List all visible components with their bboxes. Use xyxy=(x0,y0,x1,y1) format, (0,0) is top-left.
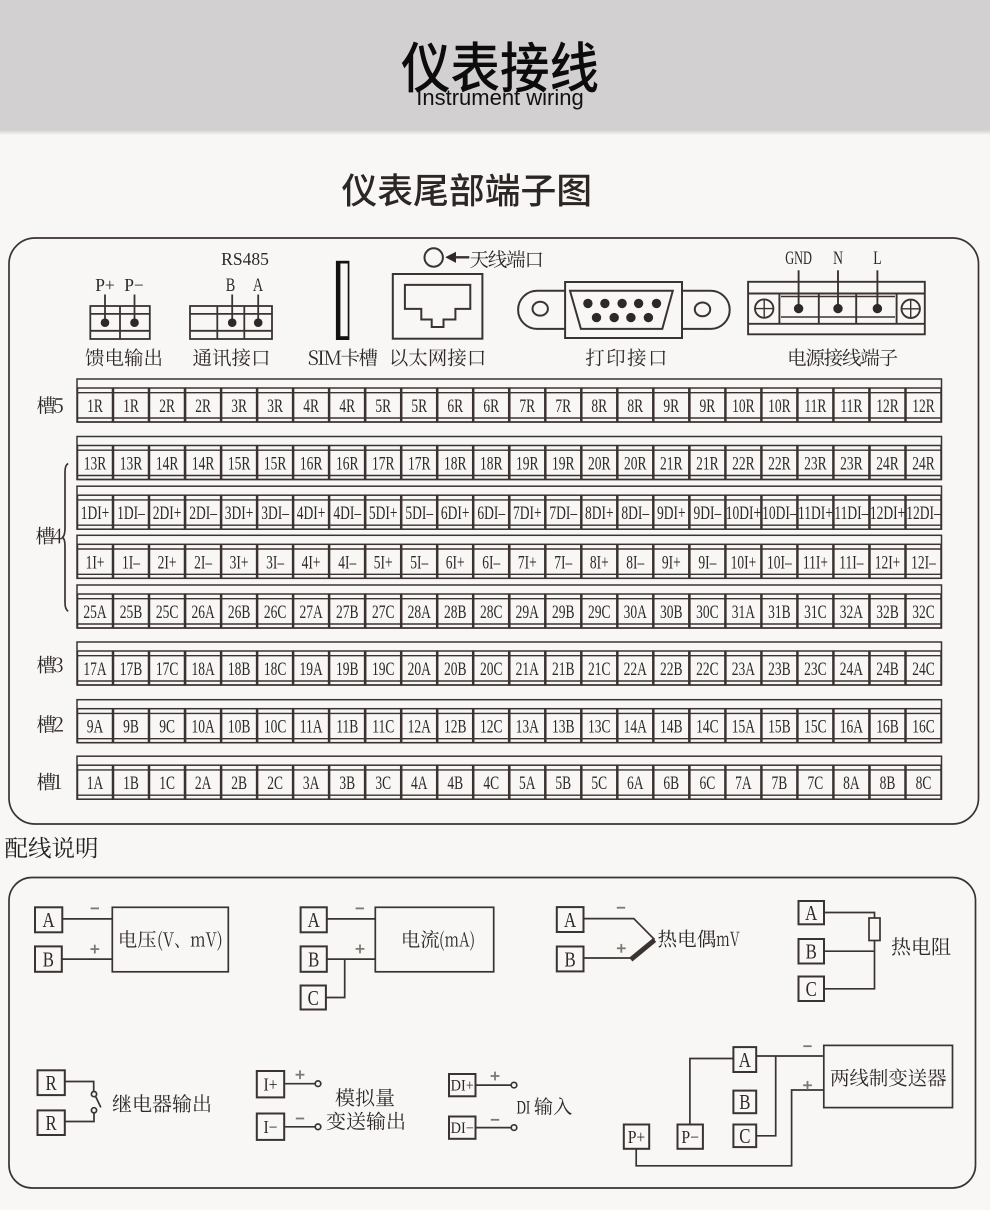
svg-text:7A: 7A xyxy=(735,773,752,794)
svg-text:9R: 9R xyxy=(700,396,716,417)
svg-text:A: A xyxy=(253,274,263,295)
svg-text:4DI–: 4DI– xyxy=(333,503,361,524)
svg-text:R: R xyxy=(45,1112,56,1135)
svg-text:9C: 9C xyxy=(159,717,175,738)
svg-text:26A: 26A xyxy=(191,602,215,623)
svg-text:RS485: RS485 xyxy=(221,249,269,269)
svg-text:3I+: 3I+ xyxy=(230,552,249,573)
svg-text:7R: 7R xyxy=(519,396,535,417)
svg-text:A: A xyxy=(739,1049,751,1072)
svg-text:1A: 1A xyxy=(87,773,104,794)
svg-text:8A: 8A xyxy=(843,773,860,794)
svg-text:20B: 20B xyxy=(444,659,467,680)
svg-text:31B: 31B xyxy=(768,602,791,623)
svg-text:15R: 15R xyxy=(264,454,287,475)
svg-text:11DI+: 11DI+ xyxy=(798,503,833,524)
svg-text:4B: 4B xyxy=(447,773,463,794)
svg-text:L: L xyxy=(873,247,881,269)
svg-text:16C: 16C xyxy=(912,717,935,738)
svg-text:20C: 20C xyxy=(480,659,503,680)
svg-text:3R: 3R xyxy=(267,396,283,417)
svg-text:11DI–: 11DI– xyxy=(834,503,869,524)
svg-text:13R: 13R xyxy=(84,454,107,475)
svg-text:N: N xyxy=(833,247,843,269)
svg-text:23R: 23R xyxy=(804,454,827,475)
svg-text:23R: 23R xyxy=(840,454,863,475)
svg-text:7B: 7B xyxy=(772,773,788,794)
svg-text:30A: 30A xyxy=(624,602,648,623)
svg-text:11A: 11A xyxy=(300,717,323,738)
svg-text:3B: 3B xyxy=(339,773,355,794)
svg-text:24C: 24C xyxy=(912,659,935,680)
svg-text:30C: 30C xyxy=(696,602,719,623)
svg-text:B: B xyxy=(564,949,575,972)
svg-text:14C: 14C xyxy=(696,717,719,738)
svg-text:29C: 29C xyxy=(588,602,611,623)
svg-text:2I+: 2I+ xyxy=(158,552,177,573)
svg-text:24B: 24B xyxy=(876,659,899,680)
svg-text:10I–: 10I– xyxy=(767,552,792,573)
svg-text:C: C xyxy=(308,987,319,1010)
svg-text:29A: 29A xyxy=(516,602,540,623)
svg-text:A: A xyxy=(805,902,817,925)
svg-text:17C: 17C xyxy=(156,659,179,680)
svg-text:14R: 14R xyxy=(192,454,215,475)
svg-text:21R: 21R xyxy=(660,454,683,475)
svg-text:24A: 24A xyxy=(840,659,864,680)
svg-text:23A: 23A xyxy=(732,659,756,680)
svg-text:P+: P+ xyxy=(95,275,115,295)
svg-text:28A: 28A xyxy=(408,602,432,623)
svg-text:12DI+: 12DI+ xyxy=(870,503,905,524)
svg-text:8R: 8R xyxy=(627,396,643,417)
svg-text:DI−: DI− xyxy=(451,1121,474,1138)
svg-text:1R: 1R xyxy=(87,396,103,417)
svg-text:12I–: 12I– xyxy=(911,552,936,573)
svg-text:3R: 3R xyxy=(231,396,247,417)
svg-text:C: C xyxy=(739,1125,750,1148)
svg-text:9DI–: 9DI– xyxy=(694,503,722,524)
svg-text:32C: 32C xyxy=(912,602,935,623)
svg-text:DI+: DI+ xyxy=(451,1078,474,1095)
svg-text:20A: 20A xyxy=(408,659,432,680)
svg-text:28B: 28B xyxy=(444,602,467,623)
svg-text:6I+: 6I+ xyxy=(446,552,465,573)
svg-text:B: B xyxy=(308,949,319,972)
svg-text:18B: 18B xyxy=(228,659,251,680)
svg-text:5A: 5A xyxy=(519,773,536,794)
svg-text:16R: 16R xyxy=(336,454,359,475)
svg-text:3C: 3C xyxy=(375,773,391,794)
svg-text:18R: 18R xyxy=(444,454,467,475)
svg-text:14R: 14R xyxy=(156,454,179,475)
svg-text:21C: 21C xyxy=(588,659,611,680)
svg-text:4I–: 4I– xyxy=(338,552,357,573)
svg-text:C: C xyxy=(806,978,817,1001)
svg-text:9I–: 9I– xyxy=(698,552,717,573)
svg-text:5C: 5C xyxy=(591,773,607,794)
svg-text:2DI–: 2DI– xyxy=(189,503,217,524)
svg-text:12A: 12A xyxy=(408,717,432,738)
svg-text:10R: 10R xyxy=(768,396,791,417)
svg-text:8C: 8C xyxy=(916,773,932,794)
svg-text:21R: 21R xyxy=(696,454,719,475)
svg-text:19B: 19B xyxy=(336,659,359,680)
svg-text:B: B xyxy=(226,274,236,295)
svg-text:6DI–: 6DI– xyxy=(477,503,505,524)
svg-text:2R: 2R xyxy=(195,396,211,417)
svg-text:5DI+: 5DI+ xyxy=(369,503,398,524)
svg-text:16A: 16A xyxy=(840,717,864,738)
svg-text:Instrument wiring: Instrument wiring xyxy=(416,85,584,110)
svg-text:B: B xyxy=(739,1092,750,1115)
svg-text:15R: 15R xyxy=(228,454,251,475)
svg-text:P−: P− xyxy=(681,1127,699,1147)
svg-text:11I–: 11I– xyxy=(839,552,864,573)
svg-text:8I+: 8I+ xyxy=(590,552,609,573)
svg-text:6DI+: 6DI+ xyxy=(441,503,470,524)
svg-text:3I–: 3I– xyxy=(266,552,285,573)
svg-text:R: R xyxy=(45,1072,56,1095)
svg-text:10DI+: 10DI+ xyxy=(726,503,761,524)
svg-text:29B: 29B xyxy=(552,602,575,623)
svg-text:15A: 15A xyxy=(732,717,756,738)
svg-text:9R: 9R xyxy=(663,396,679,417)
svg-text:4R: 4R xyxy=(339,396,355,417)
svg-text:GND: GND xyxy=(785,249,812,269)
svg-text:I+: I+ xyxy=(263,1075,277,1095)
svg-text:20R: 20R xyxy=(624,454,647,475)
svg-text:17A: 17A xyxy=(83,659,107,680)
svg-text:23B: 23B xyxy=(768,659,791,680)
svg-text:27C: 27C xyxy=(372,602,395,623)
svg-text:10B: 10B xyxy=(228,717,251,738)
svg-text:4C: 4C xyxy=(483,773,499,794)
svg-text:3DI+: 3DI+ xyxy=(225,503,254,524)
svg-text:P−: P− xyxy=(124,275,144,295)
svg-text:2B: 2B xyxy=(231,773,247,794)
svg-text:1I–: 1I– xyxy=(122,552,141,573)
svg-text:5R: 5R xyxy=(411,396,427,417)
svg-text:32B: 32B xyxy=(876,602,899,623)
svg-text:DI: DI xyxy=(517,1096,531,1118)
svg-text:11B: 11B xyxy=(336,717,358,738)
svg-text:17R: 17R xyxy=(372,454,395,475)
svg-text:9B: 9B xyxy=(123,717,139,738)
svg-text:26B: 26B xyxy=(228,602,251,623)
svg-text:9I+: 9I+ xyxy=(662,552,681,573)
svg-text:6A: 6A xyxy=(627,773,644,794)
svg-text:10C: 10C xyxy=(264,717,287,738)
svg-text:12DI–: 12DI– xyxy=(906,503,941,524)
svg-text:1B: 1B xyxy=(123,773,139,794)
svg-text:12I+: 12I+ xyxy=(875,552,901,573)
svg-text:11C: 11C xyxy=(372,717,394,738)
svg-text:7DI+: 7DI+ xyxy=(513,503,542,524)
svg-text:10I+: 10I+ xyxy=(731,552,757,573)
svg-text:11I+: 11I+ xyxy=(803,552,828,573)
svg-text:22A: 22A xyxy=(624,659,648,680)
svg-text:6I–: 6I– xyxy=(482,552,501,573)
svg-text:10DI–: 10DI– xyxy=(762,503,797,524)
svg-text:9DI+: 9DI+ xyxy=(657,503,686,524)
svg-text:32A: 32A xyxy=(840,602,864,623)
svg-text:25C: 25C xyxy=(156,602,179,623)
svg-text:7I–: 7I– xyxy=(554,552,573,573)
svg-text:22R: 22R xyxy=(732,454,755,475)
svg-text:4R: 4R xyxy=(303,396,319,417)
svg-text:27B: 27B xyxy=(336,602,359,623)
svg-text:14B: 14B xyxy=(660,717,683,738)
svg-text:4DI+: 4DI+ xyxy=(297,503,326,524)
svg-text:27A: 27A xyxy=(299,602,323,623)
svg-text:4A: 4A xyxy=(411,773,428,794)
svg-text:6R: 6R xyxy=(483,396,499,417)
svg-text:1DI+: 1DI+ xyxy=(81,503,110,524)
svg-text:13B: 13B xyxy=(552,717,575,738)
svg-text:28C: 28C xyxy=(480,602,503,623)
svg-text:1C: 1C xyxy=(159,773,175,794)
svg-text:19C: 19C xyxy=(372,659,395,680)
svg-text:12R: 12R xyxy=(876,396,899,417)
svg-text:12C: 12C xyxy=(480,717,503,738)
svg-text:10A: 10A xyxy=(191,717,215,738)
svg-text:3DI–: 3DI– xyxy=(261,503,289,524)
svg-text:30B: 30B xyxy=(660,602,683,623)
svg-text:7I+: 7I+ xyxy=(518,552,537,573)
svg-text:21B: 21B xyxy=(552,659,575,680)
svg-text:31C: 31C xyxy=(804,602,827,623)
svg-text:12B: 12B xyxy=(444,717,467,738)
svg-text:2R: 2R xyxy=(159,396,175,417)
svg-text:19R: 19R xyxy=(516,454,539,475)
svg-text:2I–: 2I– xyxy=(194,552,213,573)
svg-text:B: B xyxy=(43,949,54,972)
svg-text:12R: 12R xyxy=(912,396,935,417)
svg-text:8DI–: 8DI– xyxy=(621,503,649,524)
svg-text:25A: 25A xyxy=(83,602,107,623)
svg-text:15C: 15C xyxy=(804,717,827,738)
svg-text:22C: 22C xyxy=(696,659,719,680)
svg-text:A: A xyxy=(43,909,55,932)
svg-text:24R: 24R xyxy=(912,454,935,475)
svg-text:1R: 1R xyxy=(123,396,139,417)
svg-text:14A: 14A xyxy=(624,717,648,738)
svg-text:17B: 17B xyxy=(120,659,143,680)
svg-text:P+: P+ xyxy=(628,1127,646,1147)
svg-text:10R: 10R xyxy=(732,396,755,417)
svg-text:19R: 19R xyxy=(552,454,575,475)
svg-text:24R: 24R xyxy=(876,454,899,475)
svg-text:2A: 2A xyxy=(195,773,212,794)
svg-text:11R: 11R xyxy=(840,396,862,417)
svg-text:9A: 9A xyxy=(87,717,104,738)
svg-text:1DI–: 1DI– xyxy=(117,503,145,524)
svg-text:6C: 6C xyxy=(700,773,716,794)
svg-text:7C: 7C xyxy=(808,773,824,794)
svg-text:2DI+: 2DI+ xyxy=(153,503,182,524)
svg-text:13A: 13A xyxy=(516,717,540,738)
svg-text:11R: 11R xyxy=(804,396,826,417)
svg-text:16R: 16R xyxy=(300,454,323,475)
svg-text:13C: 13C xyxy=(588,717,611,738)
svg-text:5I–: 5I– xyxy=(410,552,429,573)
svg-text:18R: 18R xyxy=(480,454,503,475)
svg-text:22B: 22B xyxy=(660,659,683,680)
svg-text:20R: 20R xyxy=(588,454,611,475)
svg-text:7R: 7R xyxy=(555,396,571,417)
svg-text:19A: 19A xyxy=(299,659,323,680)
svg-text:3A: 3A xyxy=(303,773,320,794)
svg-text:5I+: 5I+ xyxy=(374,552,393,573)
svg-text:16B: 16B xyxy=(876,717,899,738)
svg-text:31A: 31A xyxy=(732,602,756,623)
svg-text:A: A xyxy=(564,909,576,932)
svg-text:8I–: 8I– xyxy=(626,552,645,573)
svg-text:23C: 23C xyxy=(804,659,827,680)
svg-text:6R: 6R xyxy=(447,396,463,417)
svg-text:2C: 2C xyxy=(267,773,283,794)
svg-text:17R: 17R xyxy=(408,454,431,475)
svg-text:13R: 13R xyxy=(120,454,143,475)
svg-text:A: A xyxy=(308,909,320,932)
svg-text:18A: 18A xyxy=(191,659,215,680)
svg-text:21A: 21A xyxy=(516,659,540,680)
svg-text:1I+: 1I+ xyxy=(86,552,105,573)
svg-text:8B: 8B xyxy=(880,773,896,794)
svg-text:15B: 15B xyxy=(768,717,791,738)
svg-text:8DI+: 8DI+ xyxy=(585,503,614,524)
svg-text:B: B xyxy=(806,941,817,964)
svg-text:26C: 26C xyxy=(264,602,287,623)
svg-text:4I+: 4I+ xyxy=(302,552,321,573)
svg-text:6B: 6B xyxy=(663,773,679,794)
svg-text:7DI–: 7DI– xyxy=(549,503,577,524)
svg-text:5DI–: 5DI– xyxy=(405,503,433,524)
svg-text:I−: I− xyxy=(263,1117,277,1137)
svg-text:22R: 22R xyxy=(768,454,791,475)
svg-text:8R: 8R xyxy=(591,396,607,417)
svg-text:25B: 25B xyxy=(120,602,143,623)
svg-text:5B: 5B xyxy=(555,773,571,794)
svg-text:18C: 18C xyxy=(264,659,287,680)
svg-text:5R: 5R xyxy=(375,396,391,417)
